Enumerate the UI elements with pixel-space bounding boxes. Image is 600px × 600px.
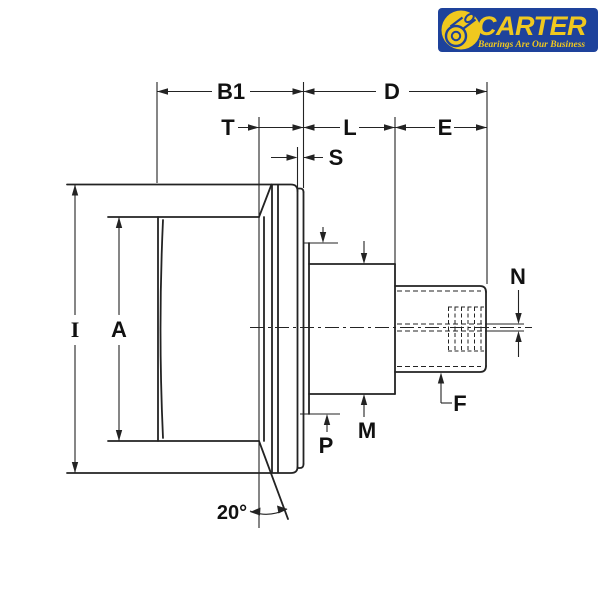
dim-label-b1: B1	[217, 79, 245, 104]
dim-label-a: A	[111, 317, 127, 342]
dim-label-angle: 20°	[217, 502, 247, 524]
dim-label-m: M	[358, 418, 376, 443]
dim-label-f: F	[453, 391, 466, 416]
logo-tagline-text: Bearings Are Our Business	[477, 40, 585, 50]
dim-label-s: S	[329, 145, 344, 170]
dim-label-d: D	[384, 79, 400, 104]
dim-label-e: E	[438, 115, 453, 140]
thread-detail	[397, 291, 524, 367]
bearing-dimension-drawing: CARTER Bearings Are Our Business	[0, 0, 600, 600]
dim-label-t: T	[221, 115, 235, 140]
logo-brand-text: CARTER	[477, 11, 587, 41]
dim-label-n: N	[510, 264, 526, 289]
dim-label-p: P	[319, 433, 334, 458]
extension-lines	[157, 82, 487, 528]
part-outline	[67, 185, 486, 520]
dim-label-i: I	[71, 317, 80, 342]
dim-label-l: L	[343, 115, 356, 140]
carter-logo: CARTER Bearings Are Our Business	[438, 8, 598, 52]
diagram-svg: CARTER Bearings Are Our Business	[0, 0, 600, 600]
